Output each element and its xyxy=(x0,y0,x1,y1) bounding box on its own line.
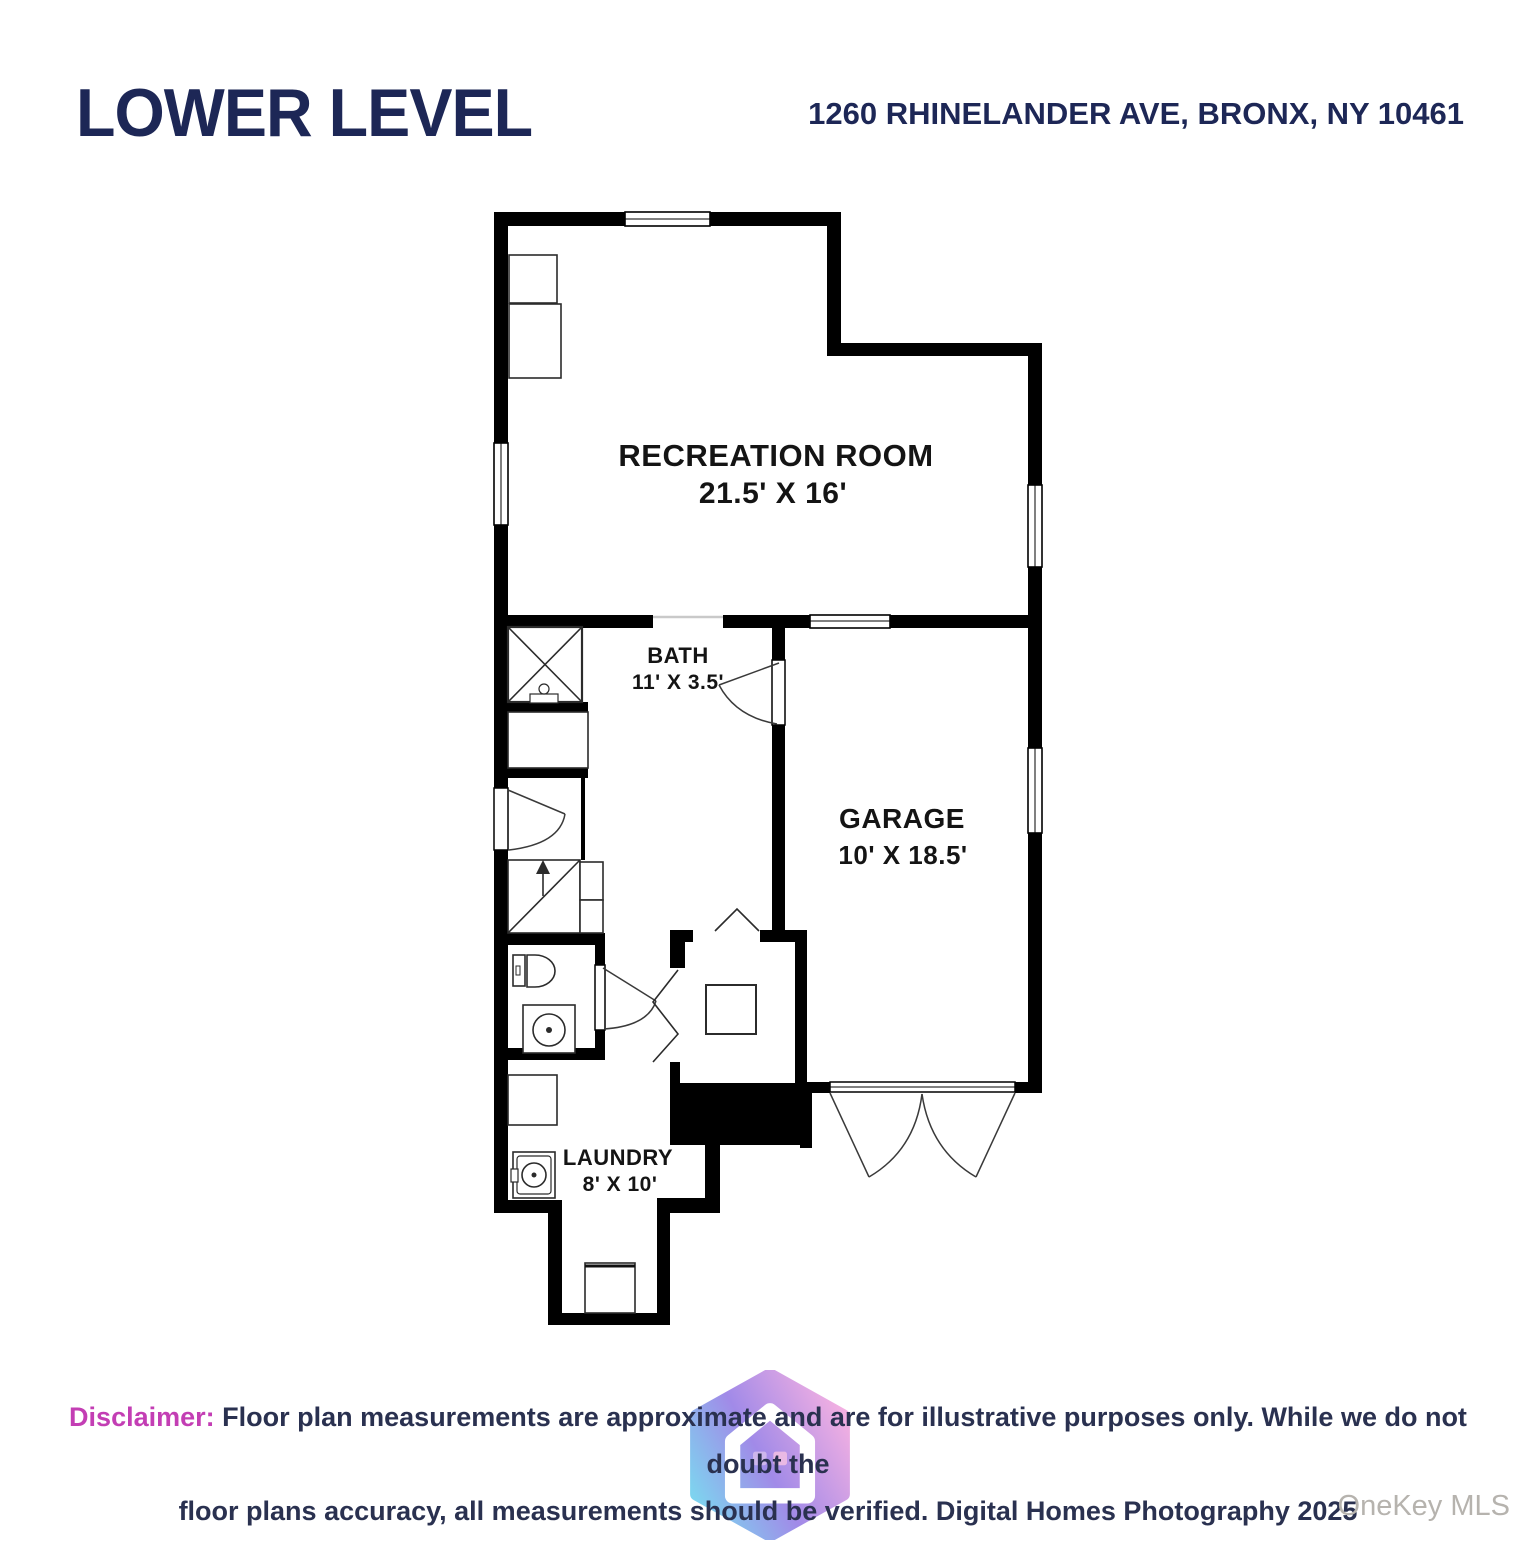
laundry-dims: 8' X 10' xyxy=(583,1173,658,1196)
garage-dims: 10' X 18.5' xyxy=(838,840,967,870)
recreation-room-dims: 21.5' X 16' xyxy=(699,477,847,510)
bath-door xyxy=(719,660,785,725)
disclaimer-line-2: floor plans accuracy, all measurements s… xyxy=(58,1488,1478,1535)
garage-double-door xyxy=(830,1082,1015,1177)
toilet xyxy=(513,955,555,987)
utility-sink xyxy=(523,1005,575,1053)
washer xyxy=(511,1152,555,1198)
disclaimer-line-1: Disclaimer: Floor plan measurements are … xyxy=(58,1394,1478,1488)
disclaimer-label: Disclaimer: xyxy=(69,1402,215,1432)
water-heater xyxy=(706,985,756,1034)
recreation-cabinets xyxy=(509,255,561,378)
window-right-upper xyxy=(1028,485,1042,567)
bath-label: BATH xyxy=(647,643,708,668)
disclaimer: Disclaimer: Floor plan measurements are … xyxy=(58,1394,1478,1535)
shower xyxy=(508,627,582,703)
laundry-label: LAUNDRY xyxy=(563,1145,673,1170)
stairs xyxy=(508,860,603,933)
entry-stoop xyxy=(585,1263,635,1313)
window-left xyxy=(494,443,508,525)
bath-dims: 11' X 3.5' xyxy=(632,671,724,694)
laundry-cabinet xyxy=(508,1075,557,1125)
recreation-room-label: RECREATION ROOM xyxy=(618,438,933,473)
window-top xyxy=(625,212,710,226)
window-right-lower xyxy=(1028,748,1042,833)
side-entry-door xyxy=(494,788,565,850)
mls-watermark: OneKey MLS xyxy=(1338,1490,1510,1523)
floor-plan-page: { "header": { "title": "LOWER LEVEL", "a… xyxy=(0,0,1536,1536)
half-bath-door xyxy=(595,965,656,1030)
vanity xyxy=(508,712,588,768)
floor-plan: RECREATION ROOM 21.5' X 16' BATH 11' X 3… xyxy=(0,0,1536,1536)
window-interior xyxy=(810,615,890,628)
garage-label: GARAGE xyxy=(839,803,965,834)
